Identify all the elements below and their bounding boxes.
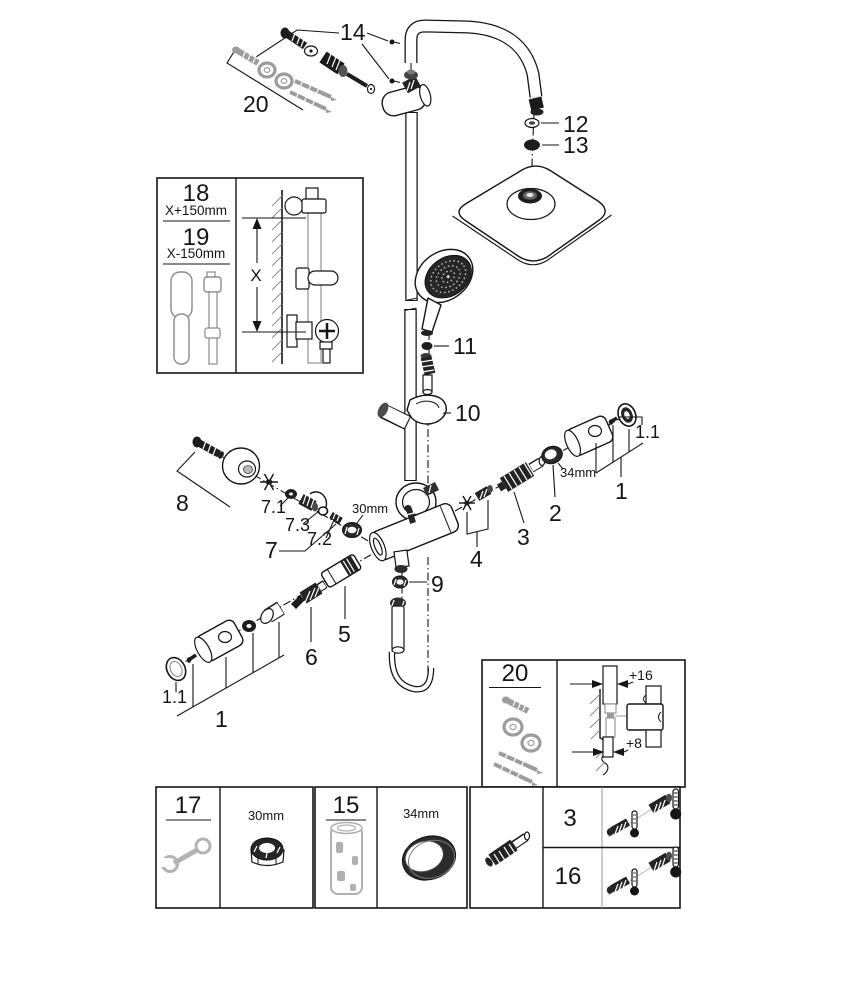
spare-16-label: 16 <box>555 863 582 890</box>
arm-end-nut <box>535 98 538 109</box>
offset-top-label: +16 <box>629 667 653 683</box>
parts-diagram-page: 14 20 12 13 11 10 1.1 1 34mm 2 3 4 8 7.1… <box>0 0 841 1000</box>
callout-3: 3 <box>517 524 530 550</box>
hand-shower-holder <box>375 395 451 424</box>
callout-1-right: 1 <box>615 478 628 504</box>
callout-1-bottom: 1 <box>215 706 228 732</box>
callout-1-1-right: 1.1 <box>635 422 660 442</box>
cartridge-3 <box>499 457 545 490</box>
handle-1-right <box>561 414 614 458</box>
thermostat-valve-body <box>366 483 460 573</box>
screw-1-1-right <box>609 418 617 425</box>
callout-4: 4 <box>470 546 483 572</box>
callout-7-2: 7.2 <box>307 529 332 549</box>
cap-1-bottom <box>163 654 190 684</box>
callout-8: 8 <box>176 490 189 516</box>
hose-assembly <box>390 598 431 690</box>
callout-7: 7 <box>265 537 278 563</box>
handle-1-bottom <box>191 618 245 665</box>
spare-3-label: 3 <box>563 805 576 832</box>
callout-14: 14 <box>340 19 366 45</box>
inset-dim-19: X-150mm <box>167 246 226 261</box>
head-shower <box>453 166 612 265</box>
grub-screws <box>390 40 401 84</box>
nut-30mm-icon <box>251 838 284 866</box>
socket-tool-icon <box>331 823 362 895</box>
arm-adjust-knob <box>404 70 418 92</box>
oring-13 <box>524 140 559 151</box>
nut-30mm <box>343 515 364 538</box>
spare-17-label: 17 <box>175 792 202 819</box>
inset-mount-box: 20 <box>482 660 685 787</box>
spare-34mm-label: 34mm <box>403 806 439 821</box>
sleeve-5 <box>320 554 361 588</box>
exploded-parts-diagram: 14 20 12 13 11 10 1.1 1 34mm 2 3 4 8 7.1… <box>0 0 841 1000</box>
offset-bottom-label: +8 <box>626 735 642 751</box>
cluster-lower-left <box>163 554 362 716</box>
washer-11 <box>422 342 450 350</box>
bushing <box>258 606 281 625</box>
inset-part-20: 20 <box>502 660 529 687</box>
inset-dim-18: X+150mm <box>165 203 227 218</box>
cartridge-6 <box>291 584 325 609</box>
screw-1-1-bottom <box>187 655 196 663</box>
nut-9 <box>393 576 428 588</box>
inset-length-box: 18 X+150mm 19 X-150mm <box>157 178 363 373</box>
callout-30mm: 30mm <box>352 501 388 516</box>
kit-14-parts <box>253 28 389 94</box>
callout-13: 13 <box>563 132 589 158</box>
callout-34mm: 34mm <box>560 465 596 480</box>
callout-7-1: 7.1 <box>261 497 286 517</box>
callout-20-top: 20 <box>243 91 269 117</box>
callout-1-1-bottom: 1.1 <box>162 687 187 707</box>
callout-5: 5 <box>338 621 351 647</box>
callout-2: 2 <box>549 500 562 526</box>
hand-shower-handle <box>422 298 441 332</box>
callout-9: 9 <box>431 571 444 597</box>
spare-30mm-label: 30mm <box>248 808 284 823</box>
spares-row: 17 30mm 15 <box>156 787 681 908</box>
washer-12 <box>525 119 559 128</box>
star-washer-left <box>260 474 278 490</box>
callout-11: 11 <box>453 333 477 359</box>
hose-connector-upper <box>421 353 435 395</box>
spare-15-label: 15 <box>333 792 360 819</box>
callout-6: 6 <box>305 644 318 670</box>
callout-10: 10 <box>455 400 481 426</box>
cluster-7-8 <box>177 437 363 552</box>
inset-x-label: X <box>250 266 261 285</box>
